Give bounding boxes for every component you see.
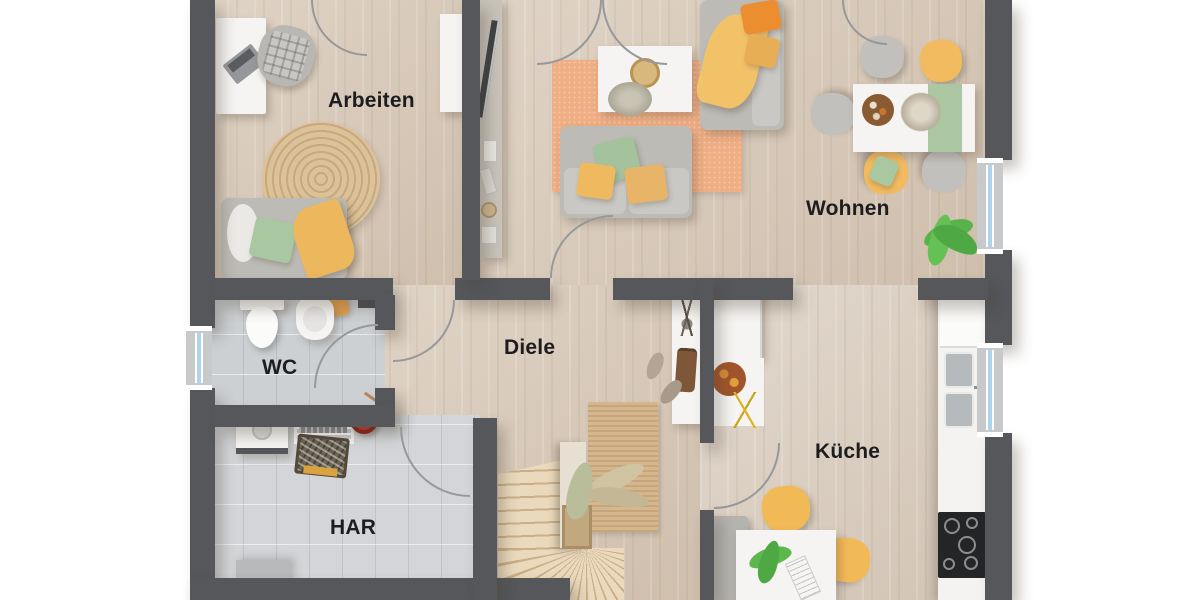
room-label-diele: Diele <box>504 336 555 360</box>
pillow-gold-side <box>743 33 781 69</box>
room-label-wohnen: Wohnen <box>806 197 890 221</box>
room-label-har: HAR <box>330 516 376 540</box>
dining-chair-gray-3 <box>921 149 968 194</box>
laundry-basket <box>294 433 350 478</box>
fruit-bowl <box>862 94 894 126</box>
room-label-wc: WC <box>262 356 297 380</box>
wall-wc-har <box>215 405 395 427</box>
wall-left-lower <box>190 388 215 600</box>
window-wc <box>186 326 212 390</box>
wall-bottom <box>190 578 570 600</box>
kitchen-sink-basin-1 <box>944 352 974 388</box>
window-glass <box>986 350 994 430</box>
shelf-books-3 <box>481 226 497 244</box>
wall-mid-wc <box>215 278 393 300</box>
window-glass <box>986 165 994 247</box>
wall-mid-kitchen <box>918 278 988 300</box>
floor-plan: Arbeiten Wohnen Diele WC Küche HAR <box>0 0 1200 600</box>
fruit-bowl-hall <box>712 362 746 396</box>
window-wohnen <box>977 158 1003 254</box>
console-branches <box>674 296 700 336</box>
office-cabinet <box>440 14 462 112</box>
yellow-sprigs <box>730 392 760 428</box>
wall-left-upper <box>190 0 215 328</box>
shelf-bowl <box>481 202 497 218</box>
room-label-kueche: Küche <box>815 440 880 464</box>
pillow-gold-sofa <box>624 164 668 205</box>
window-glass <box>195 333 203 383</box>
wc-sink <box>296 298 334 340</box>
wall-diele-kueche-bottom <box>700 510 714 600</box>
decor-plant-pale <box>608 82 652 116</box>
wall-diele-kueche-top <box>700 278 714 443</box>
wall-arbeiten-wohnen <box>462 0 480 280</box>
wall-right-middle <box>985 250 1012 345</box>
wall-right-lower <box>985 433 1012 600</box>
window-kueche <box>977 343 1003 437</box>
dried-flowers <box>900 92 942 132</box>
pillow-green <box>248 216 297 264</box>
pillow-yellow-sofa <box>576 162 616 201</box>
wall-wc-right-top <box>375 295 395 330</box>
shelf-books-1 <box>483 140 497 162</box>
dining-chair-gray-2 <box>810 92 855 136</box>
cooktop <box>938 512 986 578</box>
stairs-straight <box>498 460 562 560</box>
wall-mid-center <box>455 278 550 300</box>
room-label-arbeiten: Arbeiten <box>328 89 415 113</box>
wall-right-upper <box>985 0 1012 160</box>
wall-har-right <box>473 418 497 600</box>
kitchen-sink-basin-2 <box>944 392 974 428</box>
